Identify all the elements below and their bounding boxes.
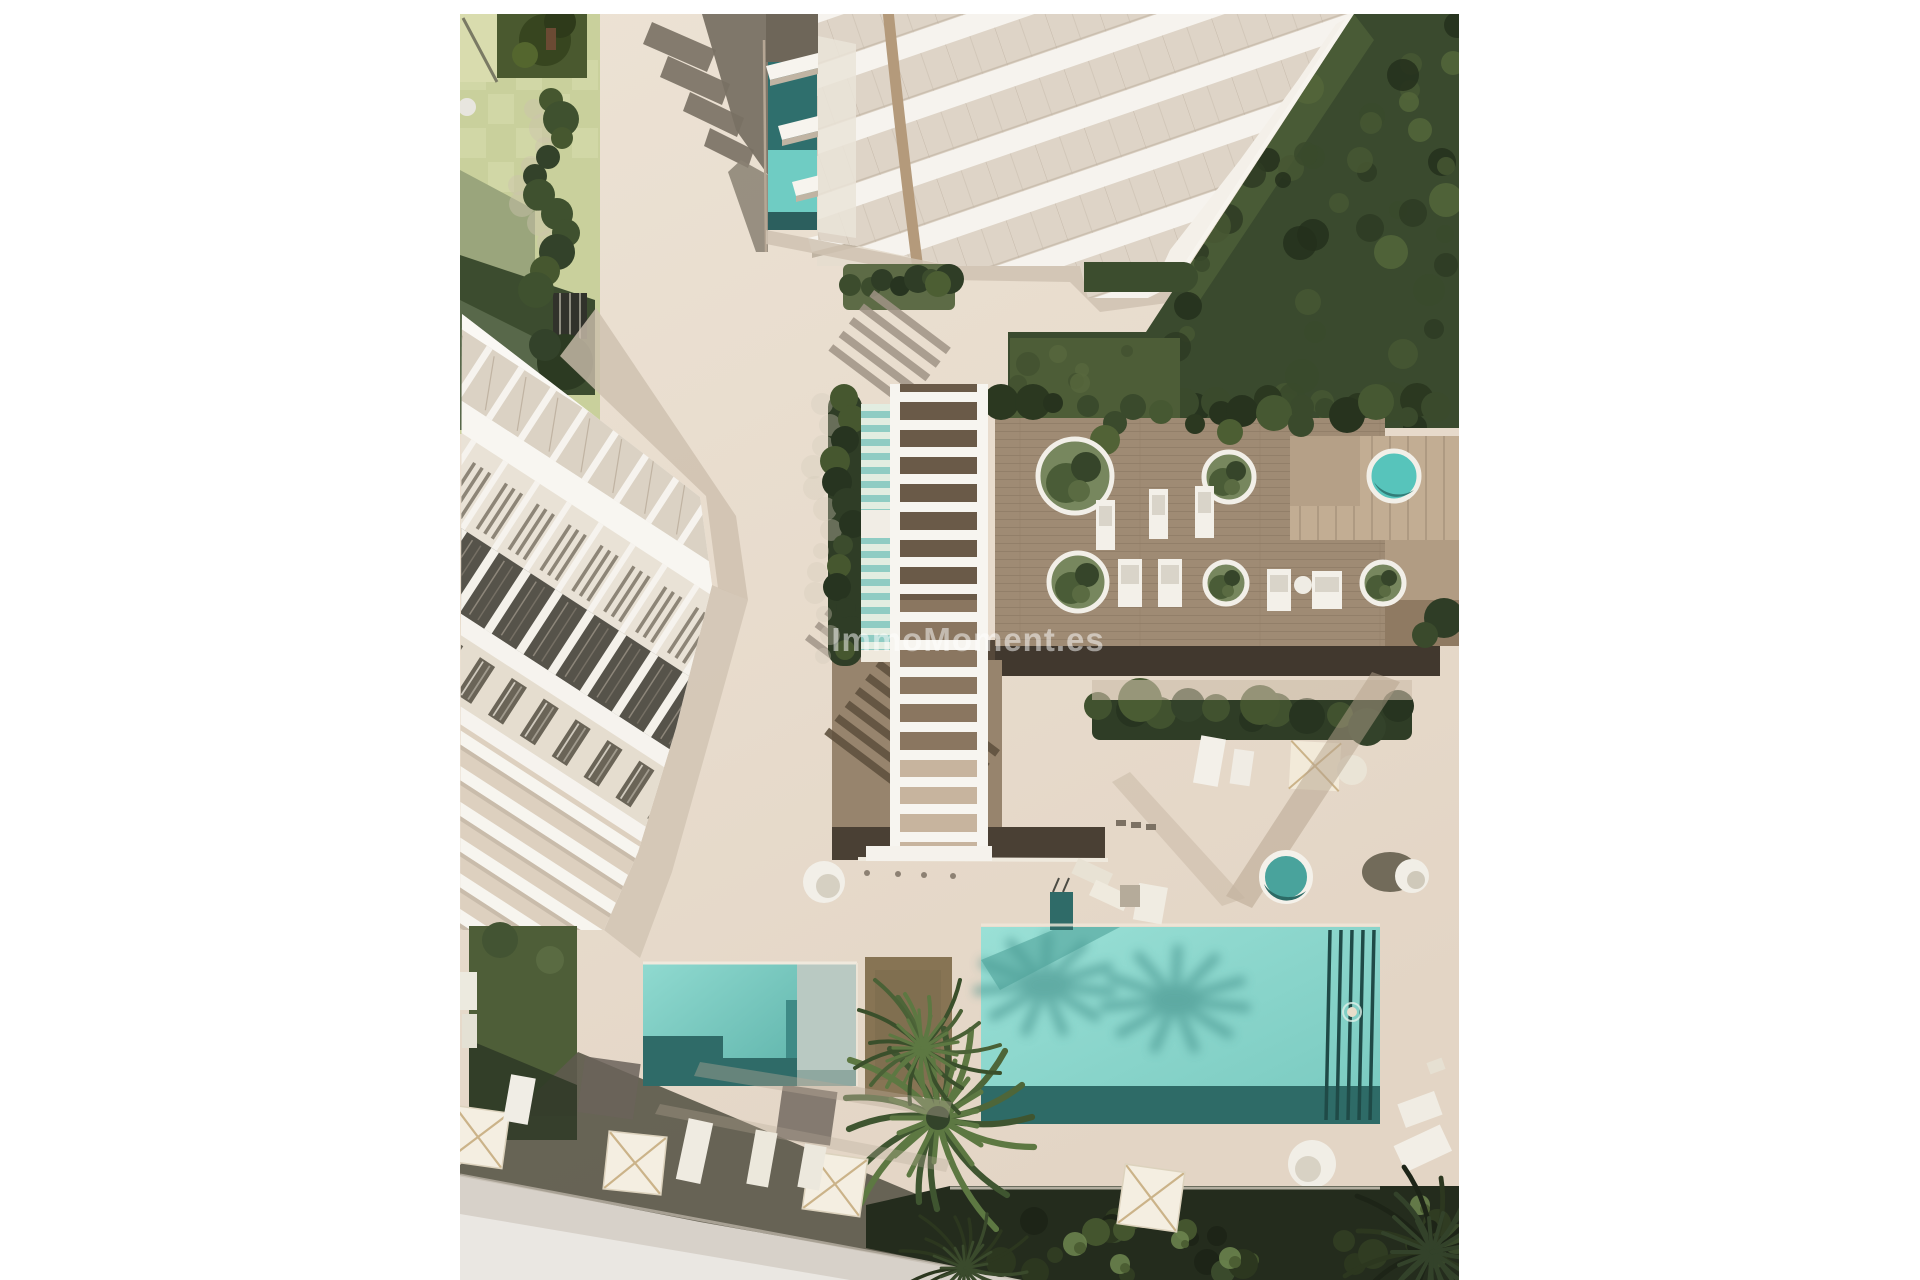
svg-text:ImmoMoment.es: ImmoMoment.es — [831, 621, 1104, 658]
